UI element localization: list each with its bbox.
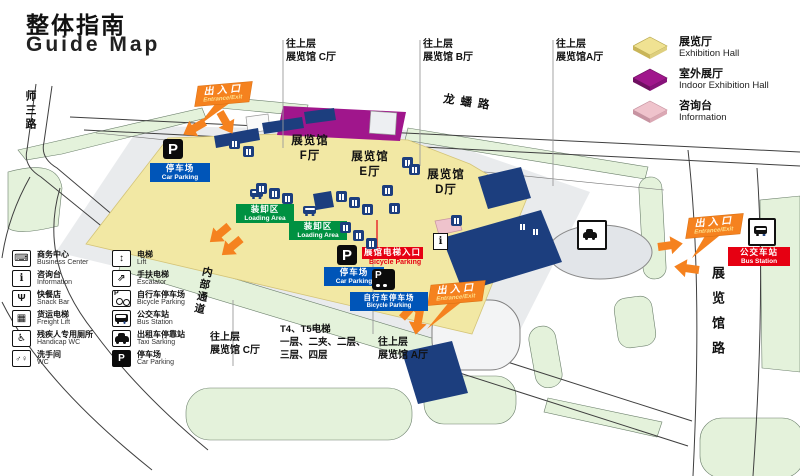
legend-label-en: Information [679,112,727,123]
link-label-hall-c-bottom: 往上层展览馆 C厅 [210,331,260,357]
snack-bar-icon: Ψ [12,290,31,307]
car-parking-icon: P [112,350,131,367]
guide-map-canvas: 整体指南 Guide Map 展览厅 Exhibition Hall 室外展厅 … [0,0,800,476]
facility-freight-lift: ▦ 货运电梯Freight Lift [12,310,70,327]
bicycle-parking-icon: P [112,290,131,307]
facility-poi-icon [340,222,351,233]
wc-icon: ♂♀ [12,350,31,367]
facility-handicap-wc: ♿ 残疾人专用厕所Handicap WC [12,330,93,347]
facility-poi-icon [409,164,420,175]
hall-d-label: 展览馆D厅 [420,168,472,198]
facility-label-zh: 手扶电梯 [137,270,169,279]
hall-e-label: 展览馆E厅 [344,150,396,180]
facility-poi-icon [269,188,280,199]
facility-label-en: Lift [137,259,153,267]
facility-label-zh: 货运电梯 [37,310,70,319]
facility-label-en: Bus Station [137,319,173,327]
facility-label-zh: 残疾人专用厕所 [37,330,93,339]
facility-poi-icon [389,203,400,214]
bus-station-icon-map [748,218,776,246]
legend-label-en: Exhibition Hall [679,48,739,59]
facility-label-en: Taxi Sarking [137,339,185,347]
link-label-hall-a-bottom: 往上层展览馆 A厅 [378,336,428,362]
facility-poi-icon [382,185,393,196]
facility-label-en: Escalator [137,279,169,287]
facility-label-zh: 快餐店 [37,290,69,299]
facility-label-en: Handicap WC [37,339,93,347]
bicycle-icon [116,298,123,305]
handicap-wc-icon: ♿ [12,330,31,347]
legend-label-en: Indoor Exhibition Hall [679,80,769,91]
loading-area-label-1: 装卸区Loading Area [236,204,294,223]
facility-label-zh: 自行车停车场 [137,290,185,299]
facility-poi-icon [256,183,267,194]
link-label-hall-a-top: 往上层展览馆A厅 [556,38,603,64]
indoor-exhibition-hall-swatch-icon [633,68,669,94]
facility-poi-icon [366,238,377,249]
facility-lift: ↕ 电梯Lift [112,250,153,267]
facility-bus-station: 公交车站Bus Station [112,310,173,327]
bicycle-parking-label: 自行车停车场 Bicycle Parking [350,292,428,311]
facility-snack-bar: Ψ 快餐店Snack Bar [12,290,69,307]
business-center-icon: ⌨ [12,250,31,267]
car-parking-label-west: 停车场Car Parking [150,163,210,182]
information-icon-map: i [433,233,448,250]
lift-icon: ↕ [112,250,131,267]
bicycle-parking-icon-map: P [372,269,395,290]
legend-item-outdoor-exhibition-hall: 室外展厅 Indoor Exhibition Hall [633,68,769,94]
hall-lift-entrance-sub: Bicycle Parking [369,259,421,266]
facility-label-en: Car Parking [137,359,174,367]
facility-poi-icon [282,193,293,204]
link-label-hall-c-top: 往上层展览馆 C厅 [286,38,336,64]
facility-label-en: WC [37,359,61,367]
facility-poi-icon [362,204,373,215]
facility-label-en: Bicycle Parking [137,299,185,307]
facility-bicycle-parking: P 自行车停车场Bicycle Parking [112,290,185,307]
facility-label-zh: 商务中心 [37,250,88,259]
facility-poi-icon [243,146,254,157]
facility-poi-icon [451,215,462,226]
facility-poi-icon [353,230,364,241]
taxi-stand-icon [112,330,131,347]
facility-wc: ♂♀ 洗手间WC [12,350,61,367]
facility-information: i 咨询台Information [12,270,72,287]
road-name-zhanlanguan: 展览馆路 [708,266,727,366]
freight-lift-icon: ▦ [12,310,31,327]
legend-label-zh: 室外展厅 [679,68,769,80]
facility-label-zh: 出租车停靠站 [137,330,185,339]
facility-label-zh: 公交车站 [137,310,173,319]
facility-car-parking: P 停车场Car Parking [112,350,174,367]
facility-label-zh: 电梯 [137,250,153,259]
information-icon: i [12,270,31,287]
facility-business-center: ⌨ 商务中心Business Center [12,250,88,267]
road-name-shisan: 师三路 [22,90,38,132]
facility-poi-icon [517,221,528,232]
facility-label-en: Business Center [37,259,88,267]
legend-item-exhibition-hall: 展览厅 Exhibition Hall [633,36,739,62]
information-swatch-icon [633,100,669,126]
facility-label-en: Information [37,279,72,287]
facility-escalator: ⇗ 手扶电梯Escalator [112,270,169,287]
car-parking-icon-south: P [337,245,357,265]
t4-t5-lift-note: T4、T5电梯一层、二夹、二层、三层、四层 [280,323,366,362]
legend-label-zh: 咨询台 [679,100,727,112]
escalator-icon: ⇗ [112,270,131,287]
facility-poi-icon [349,197,360,208]
bus-station-label: 公交车站Bus Station [728,247,790,266]
bus-station-icon [112,310,131,327]
hall-f-label: 展览馆F厅 [284,134,336,164]
link-label-hall-b-top: 往上层展览馆 B厅 [423,38,473,64]
facility-poi-icon [530,226,541,237]
facility-taxi-stand: 出租车停靠站Taxi Sarking [112,330,185,347]
exhibition-hall-swatch-icon [633,36,669,62]
facility-label-zh: 洗手间 [37,350,61,359]
facility-label-en: Snack Bar [37,299,69,307]
facility-label-zh: 咨询台 [37,270,72,279]
facility-poi-icon [229,138,240,149]
facility-label-zh: 停车场 [137,350,174,359]
loading-area-label-2: 装卸区Loading Area [289,221,347,240]
car-roundabout-icon [577,220,607,250]
facility-poi-icon [336,191,347,202]
legend-label-zh: 展览厅 [679,36,739,48]
facility-label-en: Freight Lift [37,319,70,327]
page-title-en: Guide Map [26,33,160,57]
car-parking-icon-west: P [163,139,183,159]
legend-item-information: 咨询台 Information [633,100,727,126]
